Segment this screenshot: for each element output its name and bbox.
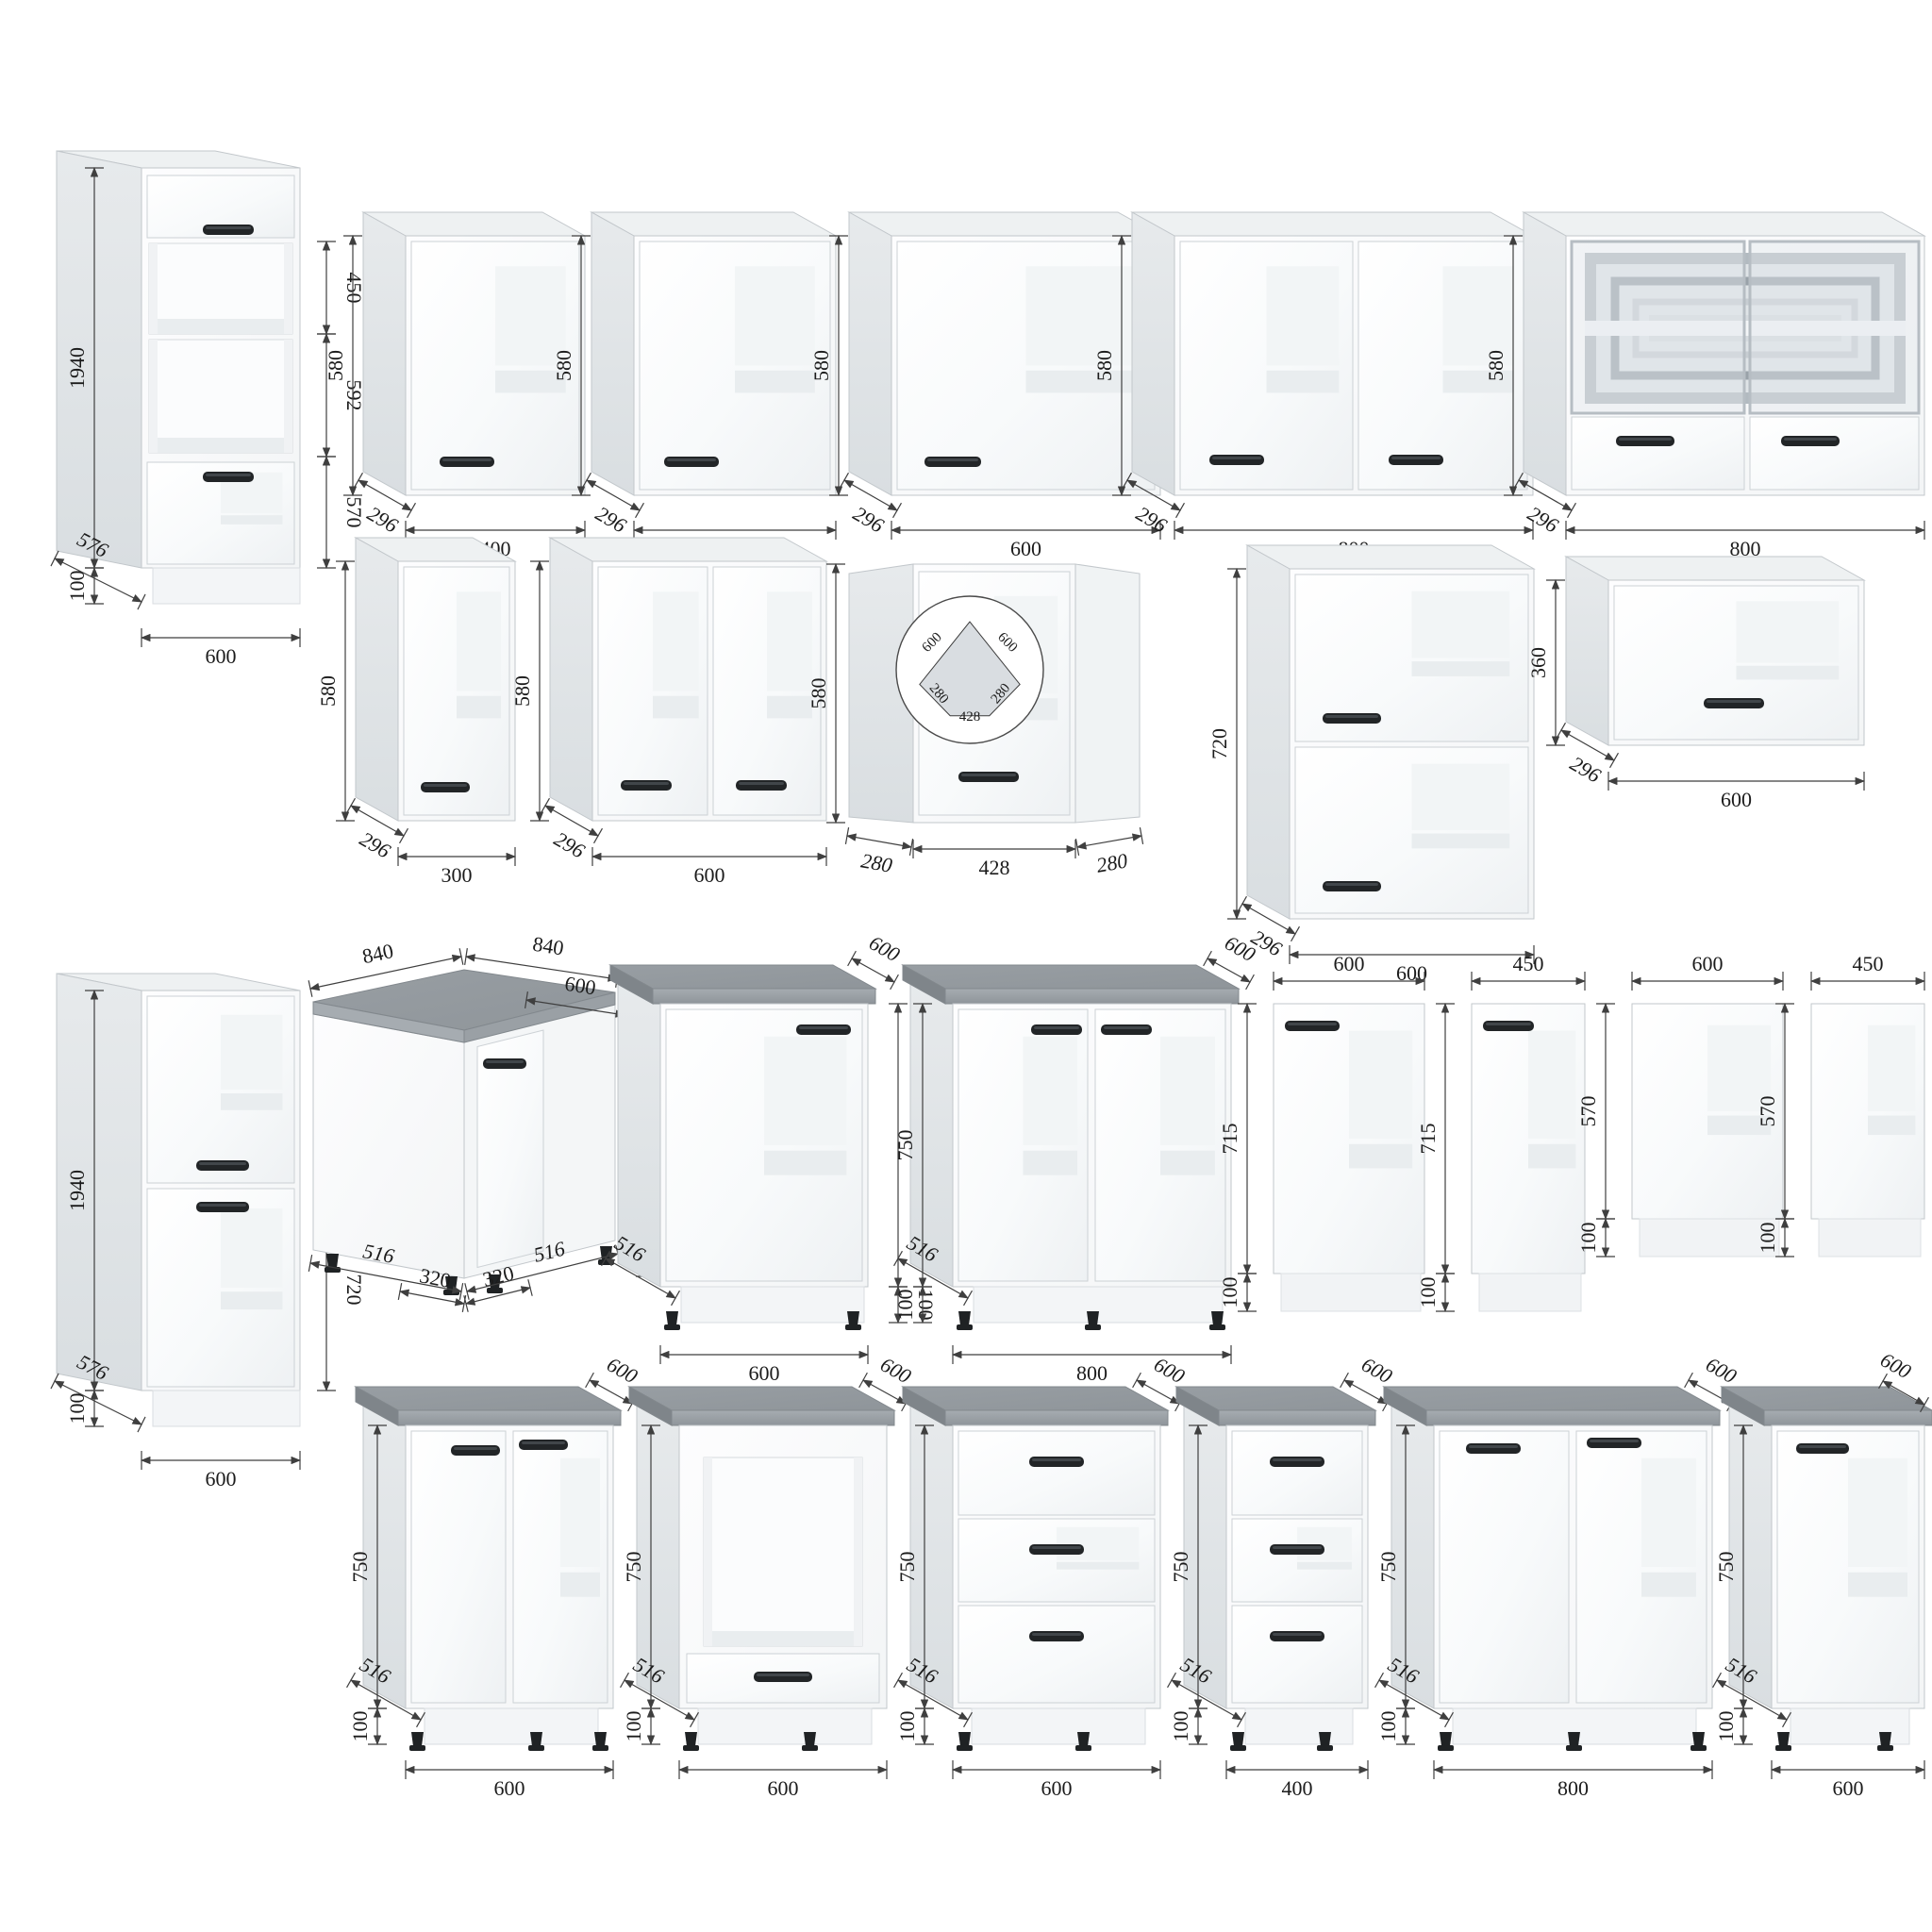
dim-label: 720 (1207, 728, 1231, 759)
dim-label: 750 (1714, 1552, 1738, 1583)
handle-icon (519, 1440, 568, 1450)
handle-icon (483, 1058, 526, 1069)
dim-label: 750 (348, 1552, 372, 1583)
dim-label: 280 (1094, 848, 1129, 876)
adjustable-foot (1230, 1732, 1246, 1751)
dim-label: 450 (1853, 952, 1884, 975)
handle-icon (1323, 713, 1381, 724)
handle-icon (1029, 1457, 1084, 1467)
dim-label: 600 (206, 1467, 237, 1491)
dim-label: 580 (316, 675, 340, 707)
handle-icon (1781, 436, 1840, 446)
module-base-800-2door-b: 750100600516800 (1375, 1353, 1741, 1800)
handle-icon (958, 772, 1019, 782)
handle-icon (621, 780, 672, 791)
handle-icon (1209, 455, 1264, 465)
dim-label: 100 (1756, 1223, 1779, 1254)
module-panel-600-570: 570100600 (1576, 952, 1783, 1257)
dim-label: 750 (1169, 1552, 1192, 1583)
dim-label: 296 (550, 826, 589, 862)
module-panel-600-715: 715100600 (1218, 952, 1424, 1311)
dim-label: 296 (363, 501, 402, 537)
handle-icon (203, 472, 254, 482)
handle-icon (1796, 1443, 1849, 1454)
handle-icon (924, 457, 981, 467)
dim-label: 600 (1833, 1776, 1864, 1800)
adjustable-foot (409, 1732, 425, 1751)
handle-icon (1285, 1021, 1340, 1031)
dim-label: 100 (1416, 1277, 1440, 1308)
module-wall-corner: 600600280280428580280428280 (807, 564, 1143, 879)
handle-icon (1389, 455, 1443, 465)
adjustable-foot (664, 1311, 680, 1330)
handle-icon (1029, 1631, 1084, 1641)
dim-label: 600 (865, 931, 904, 967)
dim-label: 360 (1526, 647, 1550, 678)
handle-icon (1483, 1021, 1534, 1031)
adjustable-foot (1775, 1732, 1791, 1751)
handle-icon (1466, 1443, 1521, 1454)
module-base-400-3drawer: 750100600516400 (1168, 1353, 1397, 1800)
dim-label: 600 (1357, 1353, 1396, 1389)
dim-label: 1940 (65, 1170, 89, 1211)
dim-label: 600 (1692, 952, 1724, 975)
adjustable-foot (957, 1732, 973, 1751)
module-wall-800-2door: 580296800 (1092, 212, 1533, 560)
adjustable-foot (957, 1311, 973, 1330)
dim-label: 296 (356, 826, 394, 862)
dim-label: 600 (694, 863, 725, 887)
module-wall-800-glass: 580296800 (1484, 212, 1924, 560)
module-base-600-1door-b: 750100600516600 (1713, 1348, 1932, 1800)
module-panel-450-715: 715100450 (1416, 952, 1585, 1311)
handle-icon (664, 457, 719, 467)
dim-label: 516 (361, 1239, 396, 1268)
dim-label: 296 (1566, 751, 1605, 787)
module-wall-600-low: 360296600 (1526, 557, 1864, 811)
dim-label: 100 (893, 1290, 917, 1321)
handle-icon (736, 780, 787, 791)
dim-label: 600 (1334, 952, 1365, 975)
dim-label: 450 (1513, 952, 1544, 975)
adjustable-foot (683, 1732, 699, 1751)
handle-icon (1616, 436, 1674, 446)
dim-label: 600 (206, 644, 237, 668)
dim-label: 800 (1076, 1361, 1108, 1385)
dim-label: 100 (1376, 1711, 1400, 1742)
dim-label: 100 (622, 1711, 645, 1742)
dim-label: 100 (65, 571, 89, 602)
dim-label: 600 (603, 1353, 641, 1389)
dim-label: 296 (591, 501, 630, 537)
module-wall-600: 580296600 (809, 212, 1160, 560)
dim-label: 580 (809, 350, 833, 381)
handle-icon (1587, 1438, 1641, 1448)
dim-label: 450 (342, 273, 366, 304)
module-base-800-2door: 750100600516800 (893, 931, 1259, 1385)
handle-icon (196, 1202, 249, 1212)
dim-label: 296 (1524, 501, 1562, 537)
dim-label: 300 (441, 863, 473, 887)
dim-label: 100 (1169, 1711, 1192, 1742)
dim-label: 750 (1376, 1552, 1400, 1583)
dim-label: 600 (1876, 1348, 1915, 1384)
dim-label: 100 (895, 1711, 919, 1742)
handle-icon (1101, 1024, 1152, 1035)
dim-label: 720 (342, 1274, 366, 1306)
handle-icon (754, 1672, 812, 1682)
dim-label: 580 (1484, 350, 1507, 381)
dim-label: 600 (494, 1776, 525, 1800)
handle-icon (1704, 698, 1764, 708)
dim-label: 570 (342, 497, 366, 528)
dim-label: 600 (1150, 1353, 1189, 1389)
handle-icon (421, 782, 470, 792)
handle-icon (440, 457, 494, 467)
dim-label: 320 (418, 1263, 453, 1292)
dim-label: 400 (1282, 1776, 1313, 1800)
dim-label: 100 (1714, 1711, 1738, 1742)
dim-label: 580 (1092, 350, 1116, 381)
dim-label: 715 (1416, 1124, 1440, 1155)
module-base-600-oven: 750100600516600 (621, 1353, 916, 1800)
dim-label: 600 (1721, 788, 1752, 811)
dim-label: 592 (342, 380, 366, 411)
handle-icon (1323, 881, 1381, 891)
dim-label: 750 (895, 1552, 919, 1583)
module-wall-300: 580296300 (316, 538, 515, 887)
handle-icon (1270, 1631, 1324, 1641)
dim-label: 750 (622, 1552, 645, 1583)
module-wall-600-2door: 580296600 (510, 538, 826, 887)
handle-icon (1270, 1457, 1324, 1467)
catalog-drawing: 1940100576600450592570580296400580296450… (0, 0, 1932, 1932)
dim-label: 600 (1702, 1353, 1740, 1389)
module-base-600-2door: 750100600516600 (347, 1353, 642, 1800)
dim-label: 428 (979, 856, 1010, 879)
dim-label: 1940 (65, 347, 89, 389)
adjustable-foot (1438, 1732, 1454, 1751)
dim-label: 800 (1557, 1776, 1589, 1800)
handle-icon (203, 225, 254, 235)
module-base-600-3drawer: 750100600516600 (894, 1353, 1190, 1800)
dim-label: 715 (1218, 1124, 1241, 1155)
dim-label: 840 (360, 939, 395, 968)
dim-label: 570 (1576, 1096, 1600, 1127)
dim-label: 580 (807, 678, 830, 709)
cabinet-catalog-page: 1940100576600450592570580296400580296450… (0, 0, 1932, 1932)
handle-icon (1029, 1544, 1084, 1555)
dim-label: 100 (914, 1290, 938, 1321)
dim-label: 100 (348, 1711, 372, 1742)
handle-icon (451, 1445, 500, 1456)
handle-icon (1270, 1544, 1324, 1555)
dim-label: 600 (876, 1353, 915, 1389)
dim-label: 296 (1132, 501, 1171, 537)
dim-label: 296 (849, 501, 888, 537)
dim-label: 100 (65, 1393, 89, 1424)
dim-label: 580 (510, 675, 534, 707)
dim-label: 600 (749, 1361, 780, 1385)
dim-label: 600 (563, 972, 598, 1000)
corner-plan-annotation: 600600280280428 (896, 596, 1043, 743)
module-tall-oven-600: 1940100576600450592570 (51, 151, 366, 668)
corner-plan-label: 428 (959, 709, 981, 724)
dim-label: 600 (768, 1776, 799, 1800)
dim-label: 280 (859, 848, 894, 876)
module-wall-450: 580296450 (552, 212, 836, 560)
handle-icon (196, 1160, 249, 1171)
dim-label: 750 (893, 1130, 917, 1161)
module-wall-600-tall: 720296600 (1207, 545, 1534, 985)
dim-label: 600 (1010, 537, 1041, 560)
dim-label: 580 (324, 350, 347, 381)
handle-icon (1031, 1024, 1082, 1035)
dim-label: 580 (552, 350, 575, 381)
dim-label: 600 (1041, 1776, 1073, 1800)
dim-label: 100 (1576, 1223, 1600, 1254)
dim-label: 840 (531, 932, 566, 960)
dim-label: 570 (1756, 1096, 1779, 1127)
dim-label: 100 (1218, 1277, 1241, 1308)
module-base-600-1door: 600750100516600 (602, 931, 938, 1385)
handle-icon (796, 1024, 851, 1035)
